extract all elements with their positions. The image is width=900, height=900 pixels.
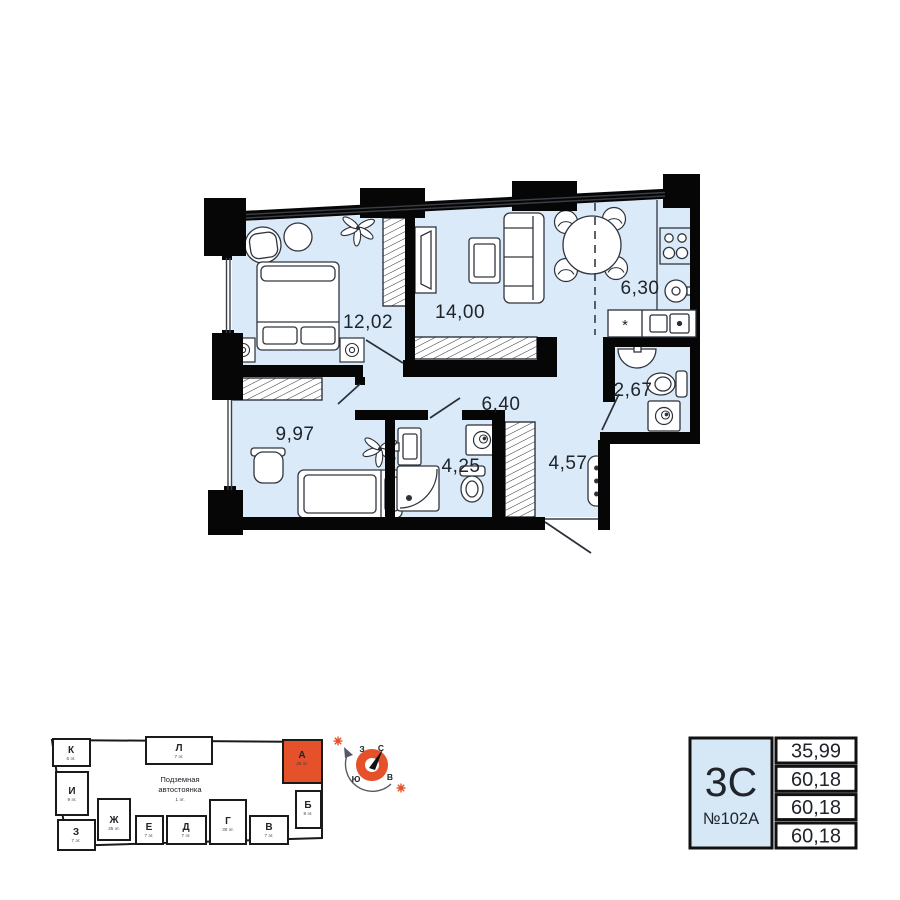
- tv-unit: [415, 227, 436, 293]
- children-stool: [251, 448, 285, 483]
- bedroom-side-table: [284, 223, 312, 251]
- room-area-hall: 6,40: [482, 394, 521, 415]
- washing-machine-2: [648, 401, 680, 431]
- dining-table: [563, 216, 621, 274]
- dining-set: [555, 208, 628, 282]
- compass: С З Ю В: [334, 737, 406, 793]
- shower: [397, 466, 439, 511]
- section-v-floors: 7 эт.: [265, 833, 274, 838]
- section-v-letter: В: [265, 822, 272, 833]
- section-a-letter: А: [298, 750, 305, 761]
- section-e-letter: Е: [146, 822, 153, 833]
- section-i-letter: И: [68, 786, 75, 797]
- section-d-floors: 7 эт.: [182, 833, 191, 838]
- room-area-bath1: 4,25: [442, 456, 481, 477]
- section-z-letter: З: [73, 827, 79, 838]
- section-zh-letter: Ж: [108, 815, 119, 826]
- section-k-letter: К: [68, 745, 75, 756]
- bedroom-armchair: [245, 227, 281, 263]
- area-value-3: 60,18: [791, 826, 841, 848]
- floorplan-canvas: * 12,02 14,00 6,30 2,67 6,40 9,97 4,25 4…: [0, 0, 900, 900]
- sun-icon-west: [334, 737, 343, 746]
- sofa: [504, 213, 544, 303]
- apartment-plan: * 12,02 14,00 6,30 2,67 6,40 9,97 4,25 4…: [204, 174, 700, 553]
- section-i-floors: 9 эт.: [68, 797, 77, 802]
- section-a-floors: 25 эт.: [296, 761, 308, 766]
- bedroom-nightstand-right: [340, 338, 364, 362]
- section-e-floors: 7 эт.: [145, 833, 154, 838]
- room-area-kitchen: 6,30: [621, 278, 660, 299]
- compass-south-label: Ю: [352, 774, 361, 784]
- parking-label-line1: Подземная: [160, 775, 199, 784]
- section-d-letter: Д: [182, 822, 189, 833]
- section-l-floors: 7 эт.: [175, 754, 184, 759]
- room-area-bedroom: 12,02: [343, 312, 393, 333]
- room-area-living: 14,00: [435, 302, 485, 323]
- compass-north-label: С: [378, 743, 384, 753]
- wardrobe-living: [413, 337, 537, 359]
- section-b-floors: 8 эт.: [304, 811, 313, 816]
- sun-icon-east: [397, 784, 406, 793]
- section-k-floors: 6 эт.: [67, 756, 76, 761]
- room-area-children: 9,97: [276, 424, 315, 445]
- area-value-2: 60,18: [791, 797, 841, 819]
- area-value-0: 35,99: [791, 741, 841, 763]
- wardrobe-children: [233, 378, 322, 400]
- floorplan-page: * 12,02 14,00 6,30 2,67 6,40 9,97 4,25 4…: [0, 0, 900, 900]
- bath-sink: [394, 428, 421, 465]
- compass-arc-arrowhead: [344, 747, 353, 758]
- coffee-table: [469, 238, 500, 283]
- compass-west-label: З: [359, 744, 364, 754]
- bedroom-bed: [257, 262, 339, 350]
- section-zh-floors: 25 эт.: [108, 826, 120, 831]
- section-l-letter: Л: [175, 743, 182, 754]
- parking-floor: 1 эт.: [175, 797, 184, 803]
- area-value-1: 60,18: [791, 769, 841, 791]
- room-area-entry: 4,57: [549, 453, 588, 474]
- section-g-floors: 30 эт.: [222, 827, 234, 832]
- wardrobe-bedroom: [383, 218, 407, 306]
- apartment-number: №102А: [703, 810, 759, 828]
- toilet-2: [647, 371, 687, 397]
- dishwasher-symbol: *: [622, 317, 628, 334]
- section-g-letter: Г: [225, 816, 231, 827]
- compass-east-label: В: [387, 772, 393, 782]
- parking-label-line2: автостоянка: [158, 785, 202, 794]
- room-area-bath2: 2,67: [614, 380, 653, 401]
- building-site-plan: К 6 эт. И 9 эт. З 7 эт. Ж 25 эт. Е 7 эт.…: [52, 737, 322, 850]
- section-b-letter: Б: [304, 800, 311, 811]
- apartment-info-card[interactable]: 3С №102А 35,99 60,18 60,18 60,18: [690, 738, 856, 848]
- layout-type: 3С: [705, 759, 757, 805]
- section-z-floors: 7 эт.: [72, 838, 81, 843]
- wardrobe-hall: [505, 422, 535, 517]
